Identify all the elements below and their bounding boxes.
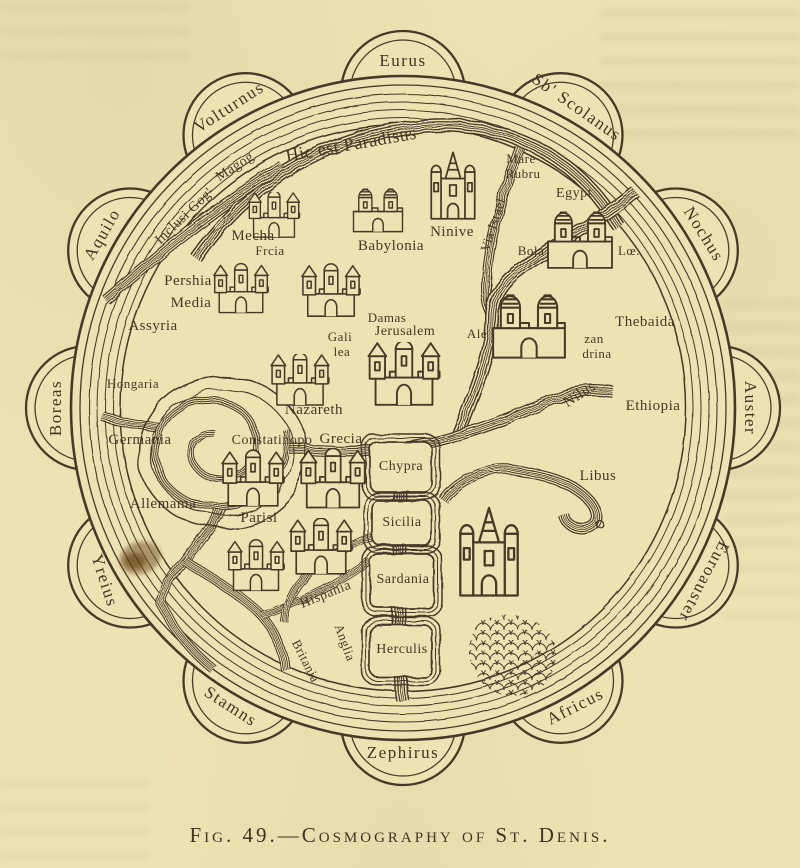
paris-castle bbox=[228, 540, 284, 591]
frcia-castle bbox=[214, 264, 268, 313]
place-label-assyria: Assyria bbox=[128, 318, 177, 334]
place-label-chypra: Chypra bbox=[379, 459, 424, 474]
place-label-lea: lea bbox=[334, 344, 351, 359]
place-label-media: Media bbox=[171, 295, 212, 311]
place-label-ethiopia: Ethiopia bbox=[626, 398, 681, 414]
figure-caption: Fig. 49.—Cosmography of St. Denis. bbox=[189, 823, 610, 847]
place-label-grecia: Grecia bbox=[320, 431, 363, 447]
place-label-ale: Ale bbox=[467, 326, 487, 341]
wind-name-eurus: Eurus bbox=[379, 51, 426, 70]
place-label-jerusalem: Jerusalem bbox=[375, 324, 435, 339]
damascus-castle bbox=[302, 264, 360, 316]
place-label-allemama: Allemama bbox=[130, 496, 196, 512]
place-label-gali: Gali bbox=[328, 329, 352, 344]
place-label-sicilia: Sicilia bbox=[382, 515, 422, 530]
wind-name-auster: Auster bbox=[741, 381, 760, 435]
place-label-rubru: Rubru bbox=[506, 166, 541, 181]
place-label-zan: zan bbox=[584, 331, 604, 346]
place-label-germania: Germania bbox=[108, 432, 171, 448]
wind-name-boreas: Boreas bbox=[46, 380, 65, 436]
place-label-thebaida: Thebaida bbox=[615, 314, 675, 330]
cosmography-map-figure: Hic est ParadisusMagogInclusi Gog'MechaF… bbox=[0, 0, 800, 868]
place-label-constatinopo: Constatinopo bbox=[232, 433, 313, 448]
place-label-pershia: Pershia bbox=[164, 273, 212, 289]
grecia-castle bbox=[300, 448, 366, 507]
wind-name-zephirus: Zephirus bbox=[367, 743, 439, 762]
hispania-castle bbox=[290, 518, 352, 574]
place-label-frcia: Frcia bbox=[255, 243, 284, 258]
place-label-babylonia: Babylonia bbox=[358, 238, 424, 254]
place-label-mare: Mare bbox=[506, 151, 535, 166]
place-label-parisi: Parisi bbox=[240, 510, 277, 526]
place-label-l: Lœ. bbox=[618, 243, 640, 258]
place-label-egypt: Egypt bbox=[556, 186, 592, 201]
place-label-damas: Damas bbox=[368, 310, 407, 325]
place-label-drina: drina bbox=[582, 346, 611, 361]
place-label-sardania: Sardania bbox=[377, 572, 430, 587]
nazareth-castle bbox=[271, 353, 329, 405]
place-label-mecha: Mecha bbox=[231, 228, 274, 244]
constantinople-castle bbox=[222, 450, 284, 506]
place-label-nazareth: Nazareth bbox=[285, 402, 343, 418]
place-label-hongaria: Hongaria bbox=[107, 376, 159, 391]
book-page: Hic est ParadisusMagogInclusi Gog'MechaF… bbox=[0, 0, 800, 868]
place-label-ninive: Ninive bbox=[430, 224, 474, 240]
place-label-herculis: Herculis bbox=[376, 642, 427, 657]
place-label-libus: Libus bbox=[580, 468, 617, 484]
place-label-bola: Bola bbox=[518, 243, 545, 258]
jerusalem-castle bbox=[368, 341, 439, 405]
